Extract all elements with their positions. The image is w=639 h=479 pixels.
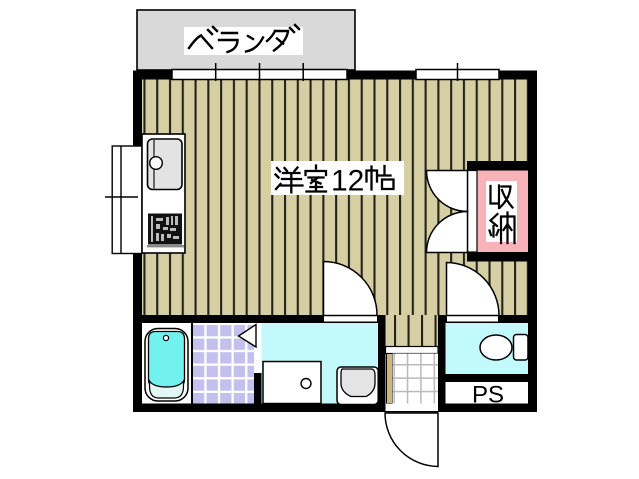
svg-text:12: 12 — [331, 165, 364, 198]
svg-text:PS: PS — [472, 382, 504, 409]
